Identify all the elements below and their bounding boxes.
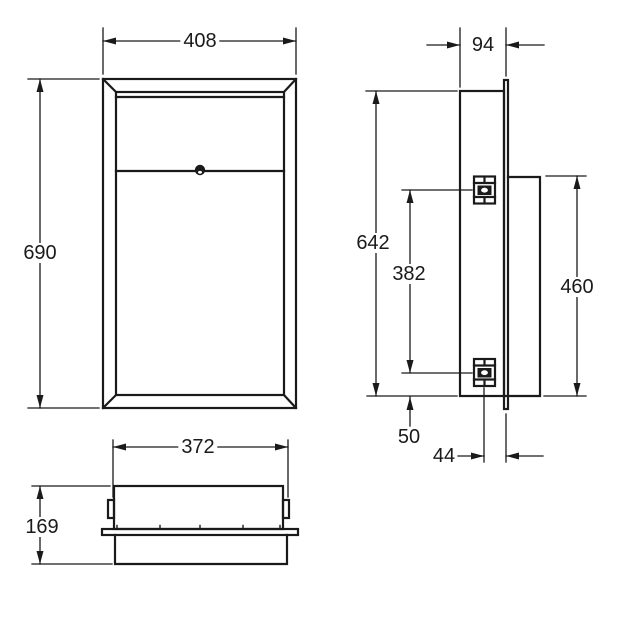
front-outer-frame [103, 79, 296, 408]
bottom-flange [102, 529, 298, 535]
bottom-tab-right [283, 500, 289, 518]
mounting-clip-bottom [474, 359, 495, 386]
bottom-housing [114, 486, 283, 529]
dim-label-side-body-height: 642 [353, 233, 392, 253]
front-view [103, 79, 296, 408]
side-front-panel [504, 177, 540, 396]
side-housing [460, 91, 504, 396]
dim-label-front-height: 690 [20, 243, 59, 263]
dim-label-front-width: 408 [180, 31, 219, 51]
dim-label-side-depth: 94 [469, 35, 497, 55]
bottom-front-panel [115, 535, 287, 564]
mounting-clip-top [474, 177, 495, 204]
side-view [460, 80, 540, 409]
dim-label-bottom-offset: 50 [395, 427, 423, 447]
dim-label-panel-height: 460 [557, 277, 596, 297]
dimension-lines [28, 28, 586, 564]
bottom-view [102, 486, 298, 564]
lock-icon [195, 165, 205, 175]
dim-label-bottom-depth: 169 [22, 517, 61, 537]
bottom-tab-left [108, 500, 114, 518]
dim-label-bottom-width: 372 [178, 437, 217, 457]
side-wall-flange [504, 80, 508, 409]
technical-drawing-canvas: 408 690 94 642 382 460 50 44 372 169 [0, 0, 640, 640]
front-inner-frame [116, 92, 284, 395]
drawing-geometry [0, 0, 640, 640]
front-frame-bevels [103, 79, 296, 408]
dim-label-bracket-offset: 44 [430, 446, 458, 466]
dim-label-bracket-spacing: 382 [389, 264, 428, 284]
